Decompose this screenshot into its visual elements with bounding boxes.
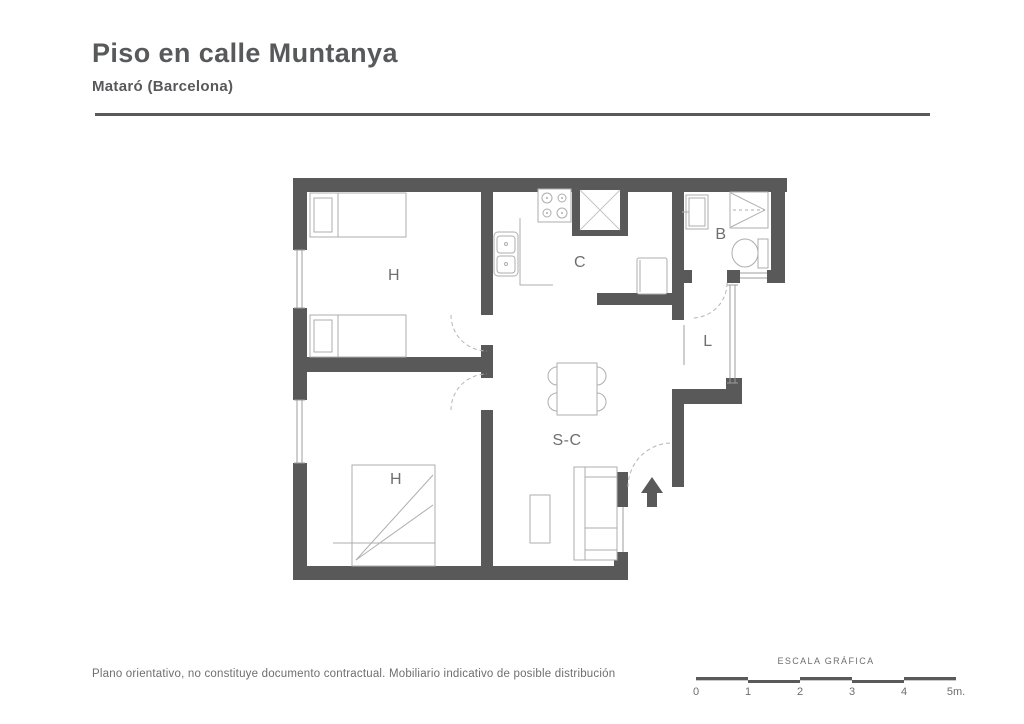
entrance-arrow-icon (641, 477, 663, 507)
room-label-living-dining: S-C (552, 432, 581, 449)
washbasin-icon (682, 195, 708, 229)
fridge-icon (637, 258, 667, 294)
entry-side-panel (617, 507, 623, 552)
page-subtitle: Mataró (Barcelona) (92, 78, 233, 95)
graphic-scale-ticks: 0 1 2 3 4 5m. (696, 686, 956, 700)
scale-tick: 2 (797, 686, 803, 698)
toilet-icon (732, 239, 768, 268)
sofa-icon (574, 467, 617, 560)
room-label-bathroom: B (715, 226, 726, 243)
room-label-laundry: L (703, 333, 712, 350)
room-label-bedroom-2: H (390, 471, 402, 488)
scale-tick: 5m. (947, 686, 965, 698)
scale-tick: 1 (745, 686, 751, 698)
single-bed-icon (310, 315, 406, 357)
window-laundry (727, 285, 738, 383)
kitchen-sink-icon (494, 232, 518, 276)
scale-tick: 3 (849, 686, 855, 698)
room-label-kitchen: C (574, 254, 586, 271)
door-arc-bathroom (692, 283, 727, 318)
disclaimer-text: Plano orientativo, no constituye documen… (92, 668, 615, 680)
header-divider (95, 113, 930, 116)
shower-icon (730, 192, 768, 228)
side-table-icon (530, 495, 550, 543)
room-label-bedroom-1: H (388, 267, 400, 284)
window-bedroom1 (294, 250, 305, 308)
light-shaft-icon (572, 182, 628, 236)
floor-plan: H C B L S-C H (290, 175, 790, 585)
chair-icon (548, 367, 557, 385)
stove-icon (538, 189, 571, 222)
page-title: Piso en calle Muntanya (92, 38, 398, 69)
page: { "header": { "title": "Piso en calle Mu… (0, 0, 1024, 724)
graphic-scale-title: ESCALA GRÁFICA (693, 656, 959, 666)
scale-tick: 4 (901, 686, 907, 698)
counter-edge (520, 218, 553, 285)
door-arc-bedroom2 (451, 374, 487, 410)
graphic-scale: ESCALA GRÁFICA 0 1 2 3 4 5m. (693, 656, 959, 700)
chair-icon (597, 393, 606, 411)
single-bed-icon (310, 193, 406, 237)
scale-tick: 0 (693, 686, 699, 698)
double-bed-icon (333, 465, 435, 566)
graphic-scale-bar (696, 677, 956, 684)
chair-icon (548, 393, 557, 411)
window-bedroom2 (294, 400, 305, 463)
window-bathroom (740, 273, 767, 278)
chair-icon (597, 367, 606, 385)
dining-table-icon (548, 363, 606, 415)
